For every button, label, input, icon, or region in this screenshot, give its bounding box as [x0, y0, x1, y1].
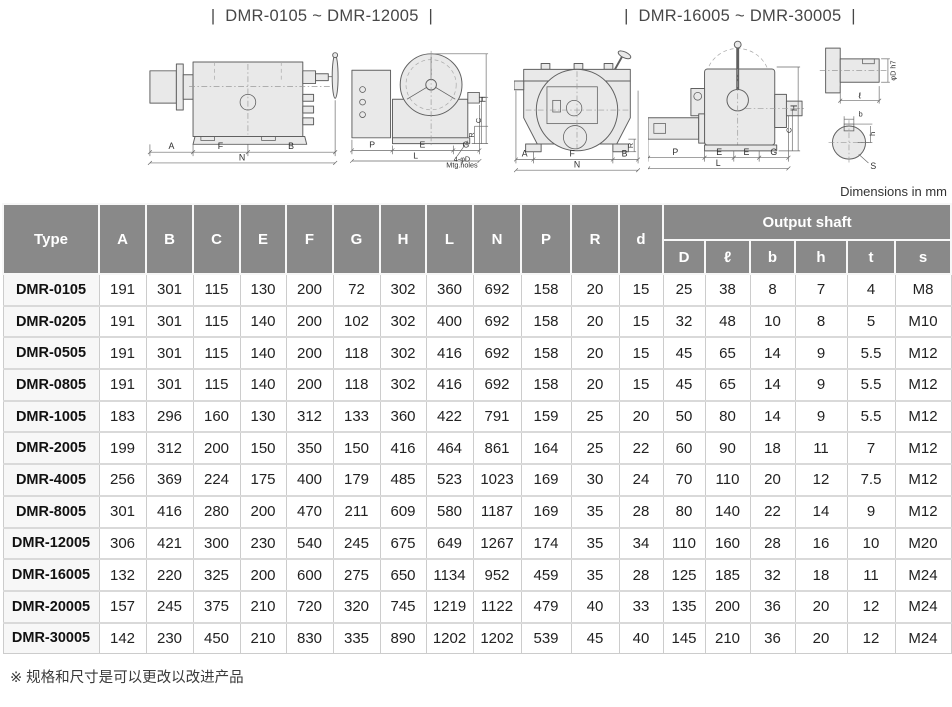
dimension-cell: 861	[473, 432, 521, 464]
dimension-cell: 12	[795, 464, 847, 496]
dim-label: C	[474, 118, 483, 123]
dimension-cell: 539	[521, 623, 571, 654]
front-view-drawing-large: A F B N R	[514, 49, 640, 175]
model-type-cell: DMR-2005	[3, 432, 99, 464]
dimension-cell: M20	[895, 528, 951, 560]
dimension-cell: 28	[619, 496, 663, 528]
dimension-cell: 20	[571, 369, 619, 401]
dimension-cell: 485	[380, 464, 426, 496]
dimension-cell: 169	[521, 496, 571, 528]
dimension-cell: 830	[286, 623, 333, 654]
dimension-cell: 160	[705, 528, 750, 560]
diagram-group-small-models: | DMR-0105 ~ DMR-12005 |	[146, 7, 498, 171]
dimension-cell: 210	[240, 623, 286, 654]
dimension-cell: 375	[193, 591, 240, 623]
dimension-cell: 224	[193, 464, 240, 496]
dimensions-note: Dimensions in mm	[0, 184, 952, 199]
dimension-cell: 191	[99, 306, 146, 338]
dimension-cell: 115	[193, 274, 240, 306]
dimension-cell: 133	[333, 401, 380, 433]
dimension-cell: 135	[663, 591, 705, 623]
model-type-cell: DMR-0205	[3, 306, 99, 338]
dimension-cell: 140	[240, 337, 286, 369]
dimension-cell: 245	[333, 528, 380, 560]
dimension-cell: 130	[240, 401, 286, 433]
dimension-cell: 33	[619, 591, 663, 623]
dimension-cell: 60	[663, 432, 705, 464]
dimension-cell: 9	[847, 496, 895, 528]
header-col: C	[193, 204, 240, 274]
dimension-cell: 36	[750, 591, 795, 623]
dim-label: ℓ	[858, 90, 861, 100]
model-range-title-right: | DMR-16005 ~ DMR-30005 |	[514, 7, 952, 26]
dimension-cell: 14	[750, 337, 795, 369]
header-shaft-col: ℓ	[705, 240, 750, 274]
dim-label: E	[716, 147, 722, 157]
table-row: DMR-120053064213002305402456756491267174…	[3, 528, 951, 560]
dimension-cell: 164	[521, 432, 571, 464]
header-col: P	[521, 204, 571, 274]
dimension-cell: 220	[146, 559, 193, 591]
dimension-cell: 256	[99, 464, 146, 496]
dimension-cell: 210	[705, 623, 750, 654]
dimension-cell: 14	[750, 369, 795, 401]
dimension-cell: 12	[847, 591, 895, 623]
dimension-cell: 210	[240, 591, 286, 623]
dim-label: G	[462, 139, 469, 149]
dimension-cell: 416	[380, 432, 426, 464]
side-view-drawing-small: A F B N	[146, 51, 342, 171]
dimension-cell: 16	[795, 528, 847, 560]
table-row: DMR-300051422304502108303358901202120253…	[3, 623, 951, 654]
dimension-cell: 200	[286, 274, 333, 306]
dimension-cell: 20	[571, 337, 619, 369]
dimension-cell: 464	[426, 432, 473, 464]
model-type-cell: DMR-30005	[3, 623, 99, 654]
dimension-cell: 649	[426, 528, 473, 560]
dimension-cell: 1122	[473, 591, 521, 623]
dimension-cell: 5	[847, 306, 895, 338]
dimension-cell: 1134	[426, 559, 473, 591]
dimension-cell: 22	[619, 432, 663, 464]
dimension-cell: 200	[286, 306, 333, 338]
dim-label: H	[478, 96, 488, 102]
dimension-cell: 14	[795, 496, 847, 528]
dimension-cell: 115	[193, 306, 240, 338]
footnote: ※ 规格和尺寸是可以更改以改进产品	[10, 666, 952, 687]
drawings-right: A F B N R	[514, 39, 952, 175]
dimension-cell: 8	[750, 274, 795, 306]
model-type-cell: DMR-8005	[3, 496, 99, 528]
diagram-group-large-models: | DMR-16005 ~ DMR-30005 |	[514, 7, 952, 175]
dimension-cell: 159	[521, 401, 571, 433]
dimension-cell: 1202	[473, 623, 521, 654]
dimension-cell: 14	[750, 401, 795, 433]
dimension-cell: 200	[286, 369, 333, 401]
dim-label: B	[288, 141, 294, 151]
dimension-cell: 150	[240, 432, 286, 464]
dimension-cell: 80	[705, 401, 750, 433]
dimension-cell: 523	[426, 464, 473, 496]
header-shaft-col: D	[663, 240, 705, 274]
dimension-cell: M12	[895, 337, 951, 369]
model-type-cell: DMR-4005	[3, 464, 99, 496]
dimension-cell: 45	[571, 623, 619, 654]
dimension-cell: 211	[333, 496, 380, 528]
dimension-cell: 130	[240, 274, 286, 306]
dimension-cell: 174	[521, 528, 571, 560]
dimension-cell: 5.5	[847, 337, 895, 369]
dimension-cell: 302	[380, 274, 426, 306]
dimension-cell: 20	[571, 306, 619, 338]
dimension-cell: 580	[426, 496, 473, 528]
table-row: DMR-020519130111514020010230240069215820…	[3, 306, 951, 338]
dimension-cell: 65	[705, 369, 750, 401]
dimension-cell: 230	[146, 623, 193, 654]
dimension-cell: 5.5	[847, 401, 895, 433]
dimension-cell: 1023	[473, 464, 521, 496]
dimension-cell: 791	[473, 401, 521, 433]
dimension-cell: 301	[146, 369, 193, 401]
dimension-cell: 416	[426, 337, 473, 369]
dimension-cell: 22	[750, 496, 795, 528]
dimension-cell: 302	[380, 337, 426, 369]
side-view-drawing-large: P E E G L H C	[648, 39, 804, 175]
dimension-cell: 35	[571, 528, 619, 560]
dimension-cell: 102	[333, 306, 380, 338]
dim-label: N	[574, 160, 580, 170]
dimension-cell: 18	[795, 559, 847, 591]
dimension-cell: 179	[333, 464, 380, 496]
dimension-cell: 140	[240, 306, 286, 338]
dimension-cell: 890	[380, 623, 426, 654]
dimension-cell: 70	[663, 464, 705, 496]
dimension-cell: 20	[795, 623, 847, 654]
dimension-cell: M8	[895, 274, 951, 306]
dimensions-table: Type A B C E F G H L N P R d Output shaf…	[2, 203, 952, 654]
header-col: d	[619, 204, 663, 274]
model-type-cell: DMR-12005	[3, 528, 99, 560]
dimension-cell: 245	[146, 591, 193, 623]
dim-label: C	[784, 128, 793, 133]
dimension-cell: 72	[333, 274, 380, 306]
drawings-left: A F B N	[146, 39, 498, 171]
table-row: DMR-800530141628020047021160958011871693…	[3, 496, 951, 528]
header-col: H	[380, 204, 426, 274]
table-row: DMR-100518329616013031213336042279115925…	[3, 401, 951, 433]
dim-label: h	[868, 132, 877, 136]
dimension-cell: 5.5	[847, 369, 895, 401]
dimension-cell: 20	[795, 591, 847, 623]
dimension-cell: 34	[619, 528, 663, 560]
dimension-cell: 160	[193, 401, 240, 433]
dimension-cell: 80	[663, 496, 705, 528]
dimension-cell: 7.5	[847, 464, 895, 496]
dimension-cell: 301	[146, 337, 193, 369]
dimension-cell: 140	[240, 369, 286, 401]
table-row: DMR-080519130111514020011830241669215820…	[3, 369, 951, 401]
dim-label: A	[522, 149, 528, 159]
dimension-cell: 350	[286, 432, 333, 464]
dim-label: P	[369, 139, 375, 149]
dimension-cell: 191	[99, 274, 146, 306]
dimension-cell: 12	[847, 623, 895, 654]
model-type-cell: DMR-0105	[3, 274, 99, 306]
front-view-drawing-small: P E G L H C R 4-φD Mtg.holes	[350, 39, 490, 171]
dimension-cell: 540	[286, 528, 333, 560]
dimension-cell: 416	[426, 369, 473, 401]
dimension-cell: 18	[750, 432, 795, 464]
dimension-cell: 459	[521, 559, 571, 591]
dimension-cell: 32	[663, 306, 705, 338]
table-row: DMR-160051322203252006002756501134952459…	[3, 559, 951, 591]
dimension-cell: 609	[380, 496, 426, 528]
dim-label: L	[716, 158, 721, 168]
dimension-cell: 4	[847, 274, 895, 306]
dimension-cell: 230	[240, 528, 286, 560]
dimension-cell: 1202	[426, 623, 473, 654]
diagram-area: | DMR-0105 ~ DMR-12005 |	[0, 0, 952, 175]
dimension-cell: 145	[663, 623, 705, 654]
dimension-cell: 10	[750, 306, 795, 338]
dimension-cell: 158	[521, 306, 571, 338]
output-shaft-detail-drawing: ℓ φD h7 b h S	[812, 41, 952, 175]
dim-label: A	[169, 141, 175, 151]
dim-label: E	[744, 147, 750, 157]
table-body: DMR-010519130111513020072302360692158201…	[3, 274, 951, 654]
dimension-cell: 48	[705, 306, 750, 338]
dimension-cell: 650	[380, 559, 426, 591]
mounting-holes-label: Mtg.holes	[446, 161, 478, 170]
dimension-cell: 158	[521, 337, 571, 369]
dim-label: S	[870, 161, 876, 171]
dimension-cell: M12	[895, 464, 951, 496]
header-shaft-col: t	[847, 240, 895, 274]
dimension-cell: 118	[333, 337, 380, 369]
dimension-cell: 692	[473, 306, 521, 338]
dim-label: R	[467, 132, 476, 137]
dimension-cell: 720	[286, 591, 333, 623]
dim-label: F	[218, 141, 224, 151]
model-type-cell: DMR-20005	[3, 591, 99, 623]
dimension-cell: 118	[333, 369, 380, 401]
dimension-cell: 28	[619, 559, 663, 591]
dimension-cell: M12	[895, 496, 951, 528]
model-type-cell: DMR-0505	[3, 337, 99, 369]
dimension-cell: 692	[473, 274, 521, 306]
dimension-cell: 175	[240, 464, 286, 496]
dimension-cell: 24	[619, 464, 663, 496]
dim-label: B	[622, 149, 628, 159]
dimension-cell: 9	[795, 337, 847, 369]
dimension-cell: 301	[99, 496, 146, 528]
dimension-cell: M24	[895, 591, 951, 623]
dimension-cell: 416	[146, 496, 193, 528]
dimension-cell: 10	[847, 528, 895, 560]
dimension-cell: 11	[847, 559, 895, 591]
dimension-cell: 115	[193, 369, 240, 401]
dimension-cell: 142	[99, 623, 146, 654]
dimension-cell: 157	[99, 591, 146, 623]
header-col: E	[240, 204, 286, 274]
dimension-cell: 745	[380, 591, 426, 623]
dim-label: φD h7	[889, 60, 898, 80]
dim-label: L	[413, 151, 418, 161]
dimension-cell: 421	[146, 528, 193, 560]
dimension-cell: 9	[795, 401, 847, 433]
dimension-cell: 369	[146, 464, 193, 496]
dimension-cell: M24	[895, 623, 951, 654]
table-row: DMR-200051572453752107203207451219112247…	[3, 591, 951, 623]
dimension-cell: 90	[705, 432, 750, 464]
dimension-cell: 45	[663, 337, 705, 369]
dimension-cell: 50	[663, 401, 705, 433]
dimension-cell: 200	[705, 591, 750, 623]
dimension-cell: 11	[795, 432, 847, 464]
header-col: N	[473, 204, 521, 274]
dimension-cell: 185	[705, 559, 750, 591]
dimension-cell: 40	[571, 591, 619, 623]
dimension-cell: 296	[146, 401, 193, 433]
dimension-cell: 200	[286, 337, 333, 369]
dimension-cell: 25	[663, 274, 705, 306]
dimension-cell: 470	[286, 496, 333, 528]
dimension-cell: 25	[571, 401, 619, 433]
dimension-cell: 132	[99, 559, 146, 591]
model-type-cell: DMR-16005	[3, 559, 99, 591]
dimension-cell: M24	[895, 559, 951, 591]
dimension-cell: 200	[240, 496, 286, 528]
dimension-cell: 302	[380, 306, 426, 338]
dimension-cell: M12	[895, 432, 951, 464]
dimension-cell: 675	[380, 528, 426, 560]
dimension-cell: 169	[521, 464, 571, 496]
dim-label: R	[626, 143, 635, 148]
header-shaft-col: h	[795, 240, 847, 274]
dimension-cell: M10	[895, 306, 951, 338]
dimension-cell: 9	[795, 369, 847, 401]
dimension-cell: 325	[193, 559, 240, 591]
dimension-cell: 35	[571, 559, 619, 591]
dimension-cell: 302	[380, 369, 426, 401]
dimension-cell: 7	[847, 432, 895, 464]
dimension-cell: M12	[895, 369, 951, 401]
header-shaft-col: b	[750, 240, 795, 274]
dimension-cell: 360	[380, 401, 426, 433]
dimension-cell: 8	[795, 306, 847, 338]
dimension-cell: 1267	[473, 528, 521, 560]
dimension-cell: 35	[571, 496, 619, 528]
header-col: B	[146, 204, 193, 274]
dim-label: b	[859, 109, 863, 118]
dimension-cell: 158	[521, 274, 571, 306]
header-col: G	[333, 204, 380, 274]
dimension-cell: 15	[619, 306, 663, 338]
dimension-cell: 320	[333, 591, 380, 623]
dimension-cell: 422	[426, 401, 473, 433]
header-col: F	[286, 204, 333, 274]
dimension-cell: 306	[99, 528, 146, 560]
dimension-cell: 15	[619, 274, 663, 306]
dim-label: H	[789, 105, 799, 111]
dimension-cell: 38	[705, 274, 750, 306]
dimension-cell: 200	[193, 432, 240, 464]
dimension-cell: 199	[99, 432, 146, 464]
dimension-cell: M12	[895, 401, 951, 433]
dimension-cell: 110	[663, 528, 705, 560]
dimension-cell: 280	[193, 496, 240, 528]
table-header: Type A B C E F G H L N P R d Output shaf…	[3, 204, 951, 274]
dimension-cell: 312	[146, 432, 193, 464]
dimension-cell: 952	[473, 559, 521, 591]
dimension-cell: 692	[473, 369, 521, 401]
dimension-cell: 36	[750, 623, 795, 654]
spec-sheet-page: | DMR-0105 ~ DMR-12005 |	[0, 0, 952, 687]
dimension-cell: 45	[663, 369, 705, 401]
dimension-cell: 1187	[473, 496, 521, 528]
table-row: DMR-400525636922417540017948552310231693…	[3, 464, 951, 496]
dimension-cell: 301	[146, 274, 193, 306]
header-type: Type	[3, 204, 99, 274]
dimension-cell: 110	[705, 464, 750, 496]
model-type-cell: DMR-0805	[3, 369, 99, 401]
dimension-cell: 400	[426, 306, 473, 338]
dimension-cell: 140	[705, 496, 750, 528]
dim-label: F	[569, 149, 574, 159]
dimension-cell: 300	[193, 528, 240, 560]
dim-label: P	[672, 147, 678, 157]
dimension-cell: 30	[571, 464, 619, 496]
dimension-cell: 7	[795, 274, 847, 306]
dim-label: N	[239, 152, 245, 162]
dimension-cell: 28	[750, 528, 795, 560]
header-col: L	[426, 204, 473, 274]
table-row: DMR-050519130111514020011830241669215820…	[3, 337, 951, 369]
dimension-cell: 15	[619, 369, 663, 401]
dimension-cell: 275	[333, 559, 380, 591]
dimension-cell: 335	[333, 623, 380, 654]
dimension-cell: 20	[571, 274, 619, 306]
model-type-cell: DMR-1005	[3, 401, 99, 433]
dimension-cell: 183	[99, 401, 146, 433]
dimension-cell: 200	[240, 559, 286, 591]
header-col: R	[571, 204, 619, 274]
dimension-cell: 479	[521, 591, 571, 623]
dimension-cell: 125	[663, 559, 705, 591]
dimension-cell: 400	[286, 464, 333, 496]
dimension-cell: 692	[473, 337, 521, 369]
header-output-shaft: Output shaft	[663, 204, 951, 240]
header-col: A	[99, 204, 146, 274]
dimension-cell: 312	[286, 401, 333, 433]
dimension-cell: 32	[750, 559, 795, 591]
dimension-cell: 20	[750, 464, 795, 496]
dimension-cell: 115	[193, 337, 240, 369]
table-row: DMR-010519130111513020072302360692158201…	[3, 274, 951, 306]
dimension-cell: 1219	[426, 591, 473, 623]
dimension-cell: 158	[521, 369, 571, 401]
dimension-cell: 450	[193, 623, 240, 654]
dimension-cell: 191	[99, 369, 146, 401]
dimension-cell: 20	[619, 401, 663, 433]
table-row: DMR-200519931220015035015041646486116425…	[3, 432, 951, 464]
dimension-cell: 301	[146, 306, 193, 338]
dimension-cell: 150	[333, 432, 380, 464]
dimension-cell: 40	[619, 623, 663, 654]
model-range-title-left: | DMR-0105 ~ DMR-12005 |	[146, 7, 498, 26]
dimension-cell: 600	[286, 559, 333, 591]
dim-label: G	[770, 147, 777, 157]
